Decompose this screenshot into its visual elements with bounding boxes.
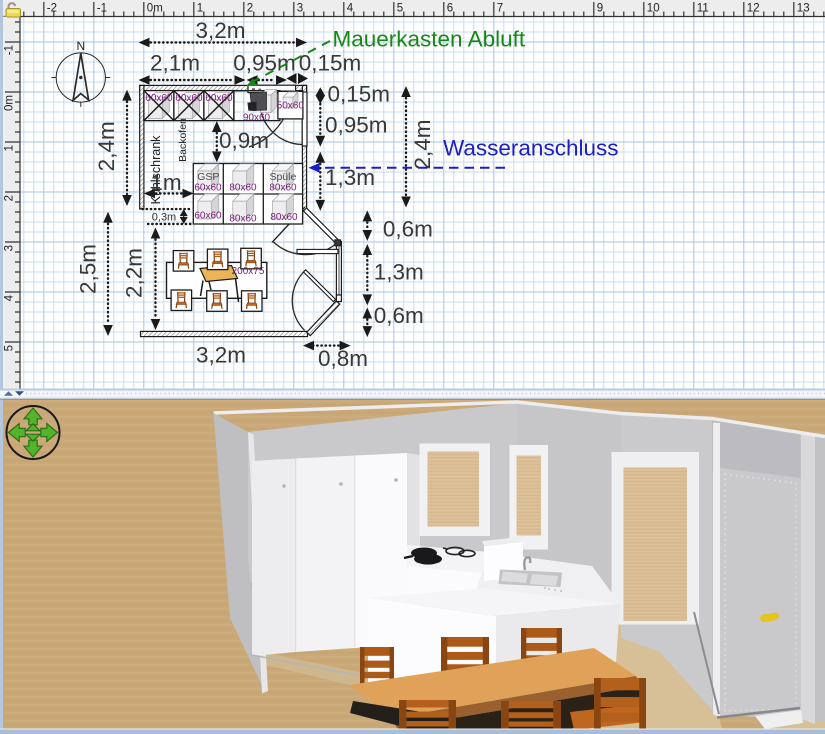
svg-text:12: 12 [747, 3, 760, 15]
svg-text:3,2m: 3,2m [196, 343, 246, 368]
svg-text:N: N [76, 39, 85, 53]
svg-text:-1: -1 [97, 3, 107, 15]
svg-text:80x60: 80x60 [270, 212, 298, 223]
svg-text:0,3m: 0,3m [152, 212, 176, 224]
svg-text:2: 2 [4, 195, 16, 201]
svg-text:2,4m: 2,4m [94, 121, 119, 171]
svg-text:80x60: 80x60 [269, 183, 297, 194]
svg-text:0,9m: 0,9m [219, 128, 269, 153]
svg-text:1m: 1m [150, 170, 181, 195]
svg-text:60x60: 60x60 [175, 93, 203, 104]
svg-text:2,1m: 2,1m [150, 51, 200, 76]
svg-text:50x60: 50x60 [277, 101, 305, 112]
svg-text:4: 4 [347, 3, 354, 15]
svg-text:60x60: 60x60 [194, 183, 222, 194]
svg-text:80x60: 80x60 [229, 183, 257, 194]
svg-text:-2: -2 [47, 3, 57, 15]
svg-text:5: 5 [397, 3, 403, 15]
svg-text:6: 6 [447, 3, 453, 15]
svg-text:2,5m: 2,5m [76, 244, 101, 294]
svg-text:60x60: 60x60 [205, 93, 233, 104]
svg-text:2,2m: 2,2m [122, 248, 147, 298]
svg-text:0,15m: 0,15m [299, 51, 362, 76]
svg-text:Backofen: Backofen [177, 118, 189, 162]
svg-text:5: 5 [4, 345, 16, 351]
svg-text:7: 7 [497, 3, 503, 15]
svg-text:13: 13 [797, 3, 810, 15]
svg-text:Mauerkasten Abluft: Mauerkasten Abluft [333, 27, 526, 52]
svg-text:1,3m: 1,3m [374, 260, 424, 285]
svg-text:3: 3 [4, 245, 16, 251]
svg-text:9: 9 [597, 3, 603, 15]
svg-text:0,15m: 0,15m [328, 82, 391, 107]
svg-text:0,6m: 0,6m [374, 303, 424, 328]
svg-text:0m: 0m [4, 95, 16, 111]
svg-text:2,4m: 2,4m [410, 119, 435, 169]
svg-text:80x60: 80x60 [229, 214, 257, 225]
svg-text:0,6m: 0,6m [383, 217, 433, 242]
svg-text:3: 3 [297, 3, 303, 15]
svg-text:3,2m: 3,2m [195, 18, 245, 43]
svg-text:60x60: 60x60 [145, 93, 173, 104]
svg-text:-1: -1 [4, 45, 16, 55]
svg-text:Spüle: Spüle [269, 171, 296, 183]
svg-text:2: 2 [247, 3, 253, 15]
svg-text:0,8m: 0,8m [318, 346, 368, 371]
svg-text:200x75: 200x75 [232, 266, 265, 277]
svg-text:90x60: 90x60 [243, 113, 271, 124]
svg-text:0,95m: 0,95m [325, 113, 388, 138]
svg-text:4: 4 [4, 294, 16, 301]
svg-text:10: 10 [647, 3, 660, 15]
svg-text:1: 1 [197, 3, 203, 15]
svg-text:GSP: GSP [197, 171, 219, 183]
svg-text:Wasseranschluss: Wasseranschluss [443, 136, 618, 161]
svg-text:60x60: 60x60 [194, 211, 222, 222]
svg-text:0m: 0m [147, 3, 163, 15]
svg-text:11: 11 [697, 3, 709, 15]
svg-text:1: 1 [4, 145, 16, 151]
